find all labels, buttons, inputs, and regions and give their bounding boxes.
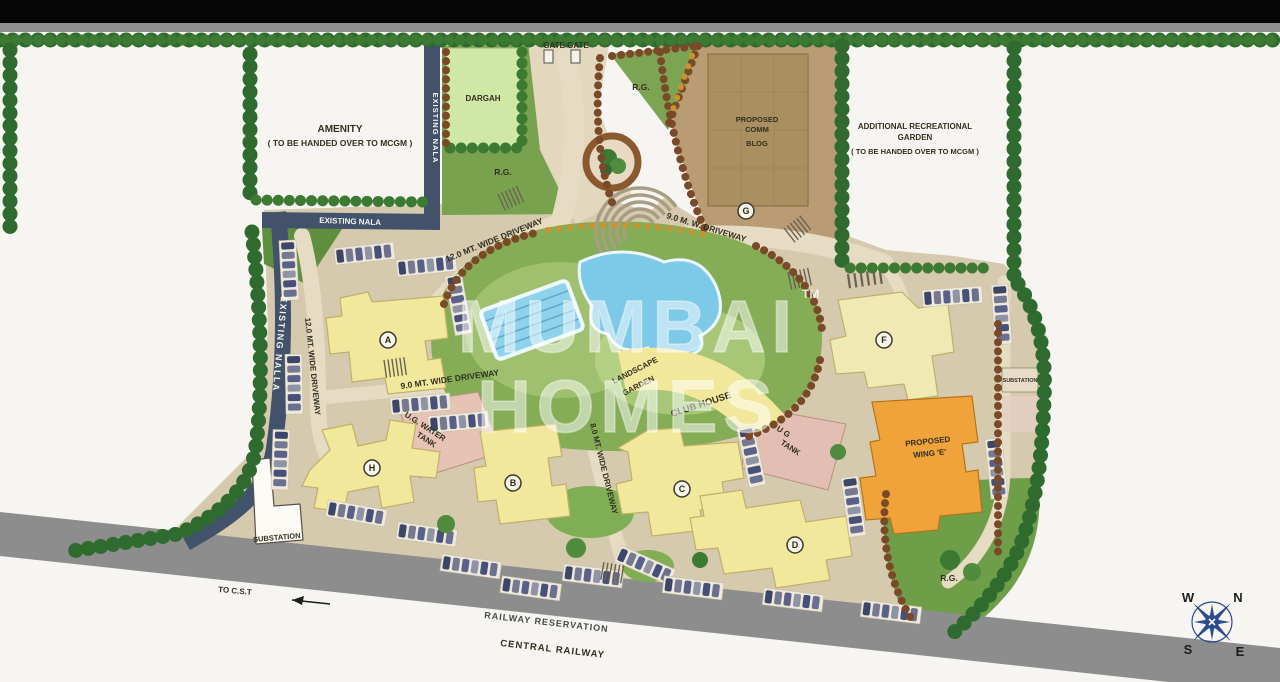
gate-label: GATE GATE xyxy=(543,41,589,50)
watermark: MUMBAI HOMES TM xyxy=(458,285,819,448)
site-plan-screenshot: AMENITY ( TO BE HANDED OVER TO MCGM ) EX… xyxy=(0,0,1280,682)
addl-garden-label-3: ( TO BE HANDED OVER TO MCGM ) xyxy=(851,147,979,156)
wing-e-building xyxy=(860,396,982,534)
amenity-title: AMENITY xyxy=(318,124,363,135)
site-plan-map: AMENITY ( TO BE HANDED OVER TO MCGM ) EX… xyxy=(0,0,1280,682)
top-black-bar xyxy=(0,0,1280,23)
building-marker-a-label: A xyxy=(385,335,392,345)
building-marker-h: H xyxy=(364,460,380,476)
building-marker-h-label: H xyxy=(369,463,376,473)
comm-label-3: BLOG xyxy=(746,139,768,148)
dargah-label: DARGAH xyxy=(465,94,500,103)
building-marker-g: G xyxy=(738,203,754,219)
watermark-line-1: MUMBAI xyxy=(458,285,798,368)
building-marker-f-label: F xyxy=(881,335,887,345)
rg-bottom-label: R.G. xyxy=(940,573,957,583)
compass-west: W xyxy=(1182,590,1195,605)
compass-south: S xyxy=(1184,642,1193,657)
substation-right-label: SUBSTATION xyxy=(1003,378,1038,384)
comm-label-1: PROPOSED xyxy=(736,115,779,124)
addl-garden-label-2: GARDEN xyxy=(898,133,933,142)
comm-label-2: COMM xyxy=(745,125,769,134)
compass-east: E xyxy=(1236,644,1245,659)
building-marker-c: C xyxy=(674,481,690,497)
building-marker-b: B xyxy=(505,475,521,491)
watermark-line-2: HOMES xyxy=(477,365,778,448)
building-marker-d-label: D xyxy=(792,540,799,550)
watermark-trademark: TM xyxy=(802,287,819,301)
entrance-planter xyxy=(586,136,638,188)
top-gray-strip xyxy=(0,23,1280,32)
amenity-subtitle: ( TO BE HANDED OVER TO MCGM ) xyxy=(268,138,413,148)
addl-garden-label-1: ADDITIONAL RECREATIONAL xyxy=(858,122,972,131)
building-marker-c-label: C xyxy=(679,484,686,494)
existing-nala-top-label: EXISTING NALA xyxy=(431,93,440,164)
rg-top-label: R.G. xyxy=(632,82,649,92)
building-marker-b-label: B xyxy=(510,478,517,488)
rg-center-label: R.G. xyxy=(494,167,511,177)
compass-north: N xyxy=(1233,590,1242,605)
building-marker-f: F xyxy=(876,332,892,348)
building-marker-a: A xyxy=(380,332,396,348)
building-marker-d: D xyxy=(787,537,803,553)
building-marker-g-label: G xyxy=(742,206,749,216)
